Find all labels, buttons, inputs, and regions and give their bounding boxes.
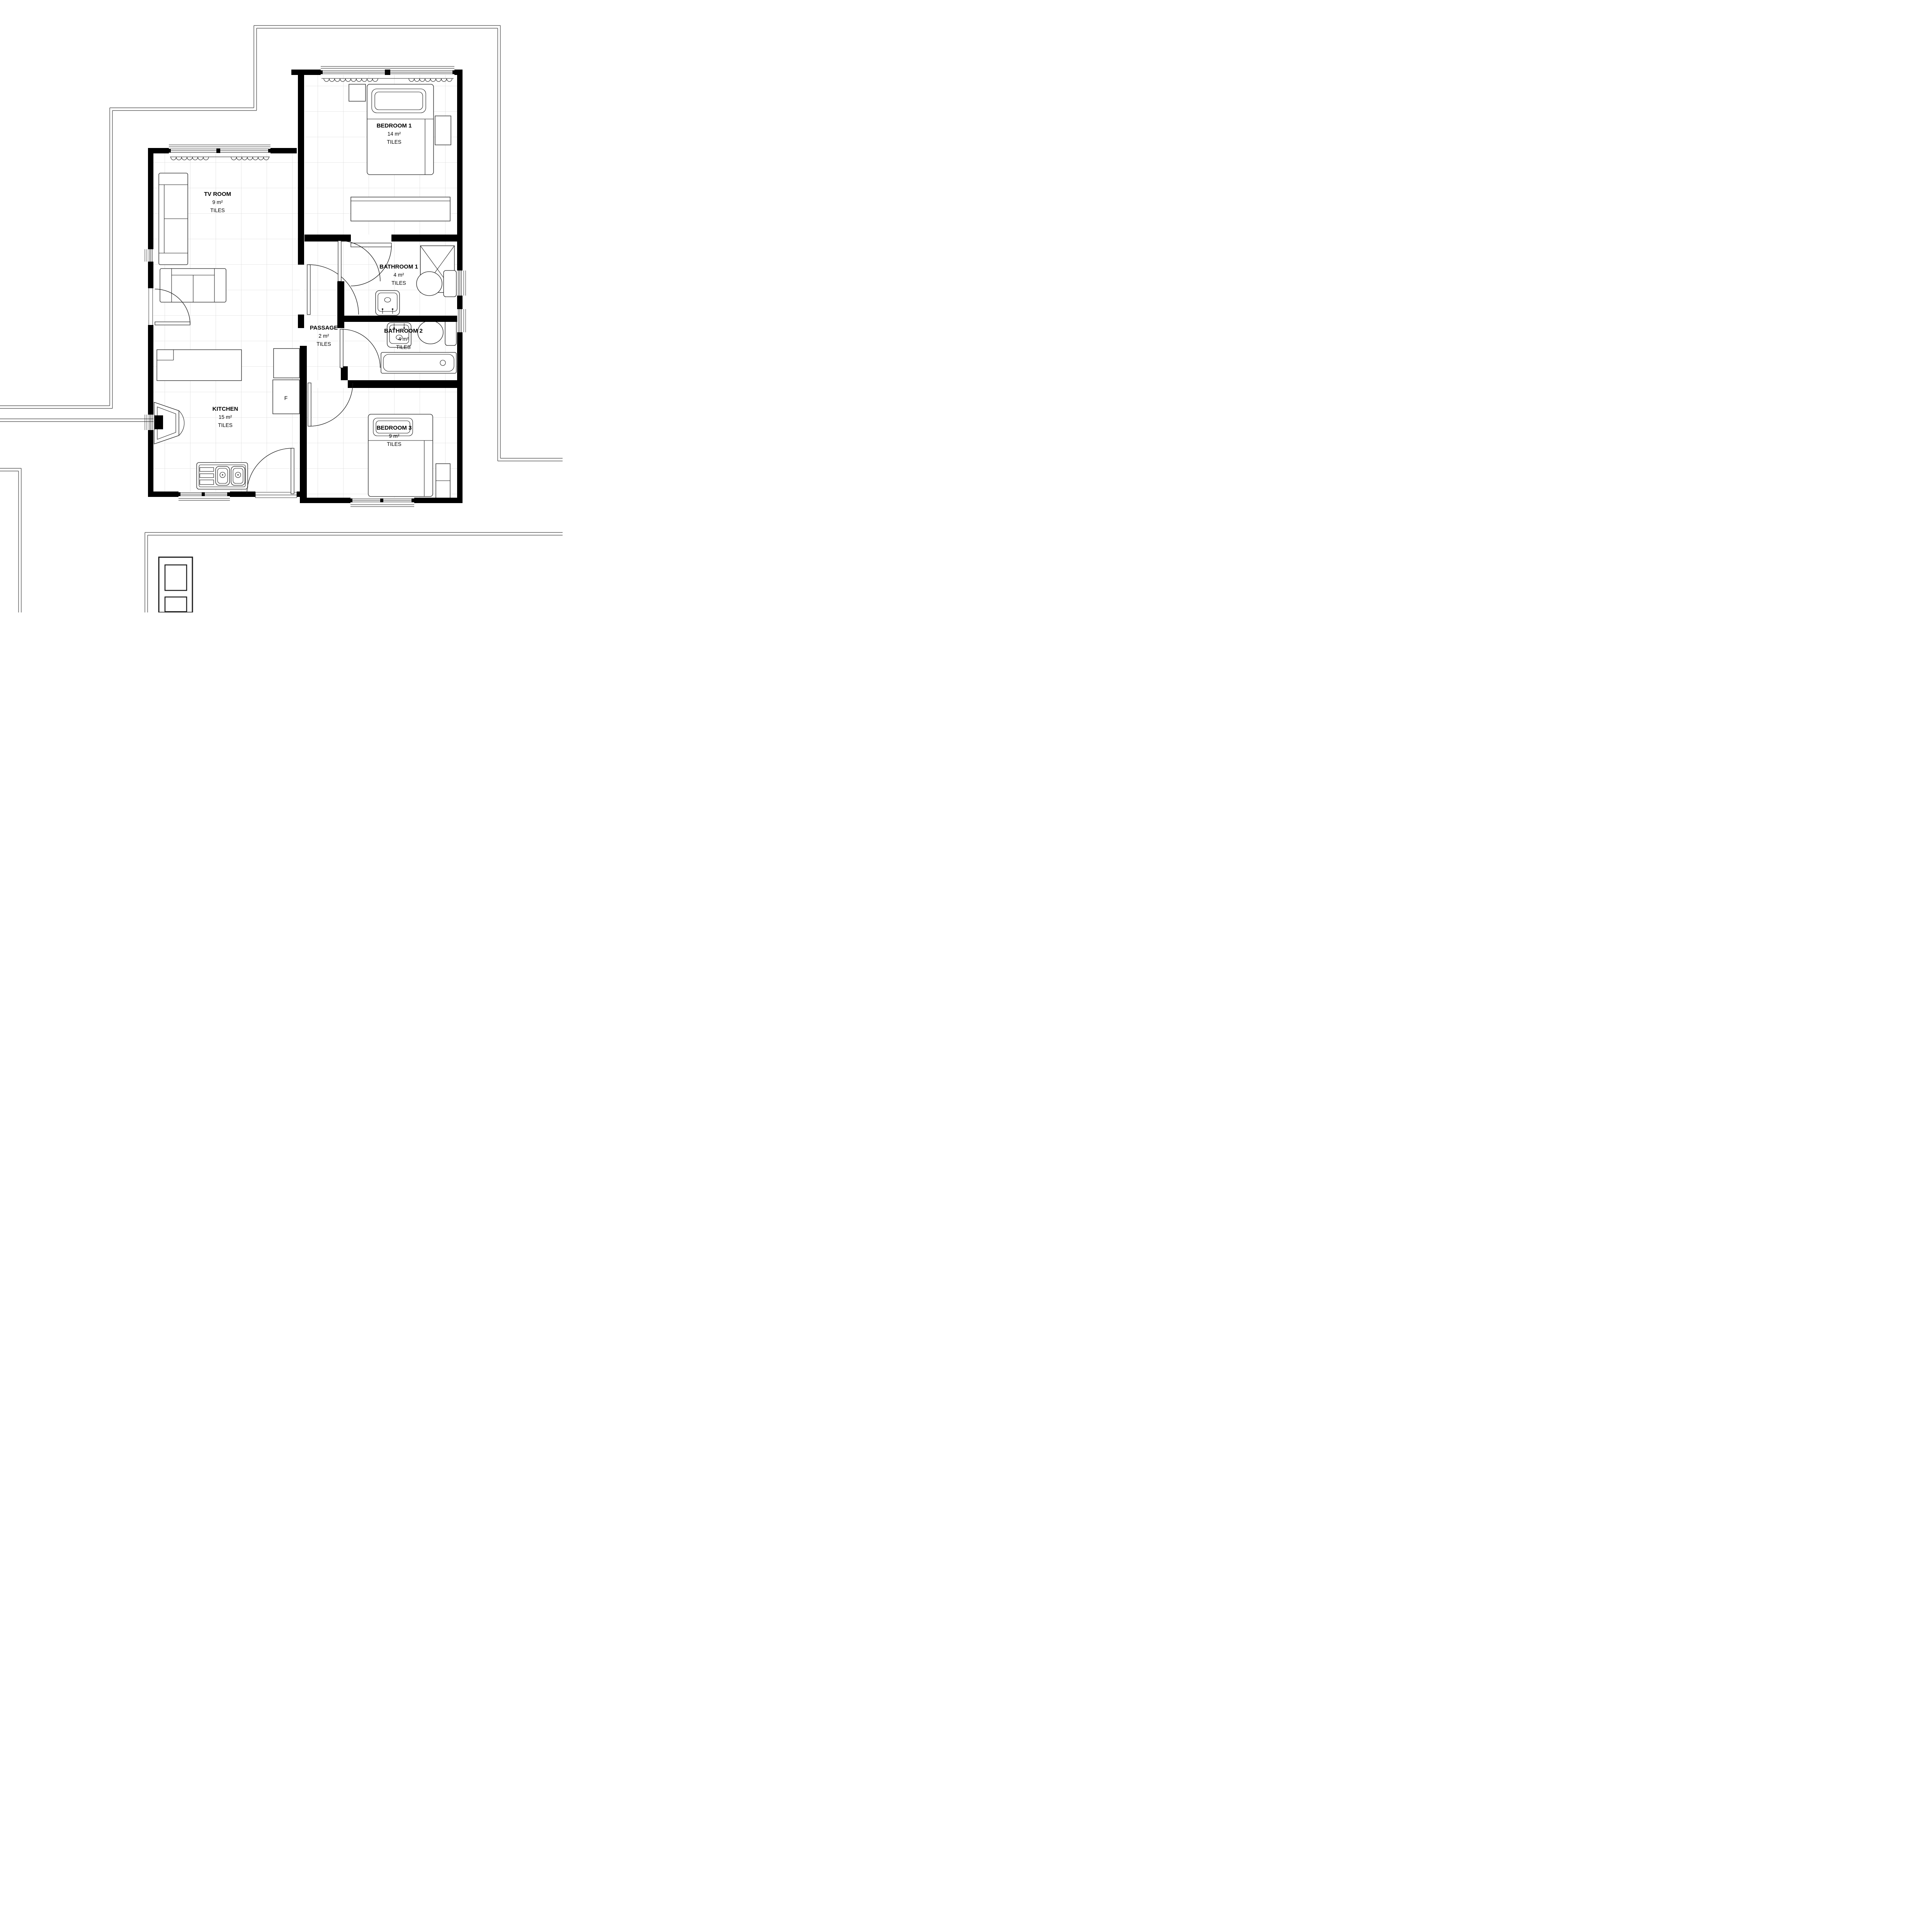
bed1-side-table-left	[349, 84, 366, 101]
bed1-side-table-right	[435, 116, 451, 145]
svg-text:BATHROOM 2: BATHROOM 2	[384, 328, 423, 334]
outbuilding-panel-bottom	[165, 597, 187, 612]
svg-text:BATHROOM 1: BATHROOM 1	[379, 264, 418, 270]
floor-plan-page: F	[0, 0, 563, 612]
toilet1-symbol	[417, 270, 456, 297]
outbuilding-panel-top	[165, 565, 187, 590]
basin2-symbol	[387, 323, 411, 347]
svg-text:TILES: TILES	[396, 344, 411, 350]
fridge-symbol: F	[273, 380, 299, 414]
svg-text:15 m²: 15 m²	[219, 414, 232, 420]
bed1-double-bed-symbol	[367, 84, 434, 175]
svg-text:9 m²: 9 m²	[213, 199, 223, 205]
bathtub-symbol	[381, 352, 456, 373]
svg-text:BEDROOM 3: BEDROOM 3	[377, 425, 412, 431]
svg-text:TILES: TILES	[210, 207, 225, 213]
svg-text:9 m²: 9 m²	[389, 433, 400, 439]
stove-flue	[155, 415, 163, 429]
sofa-horizontal-symbol	[160, 269, 226, 302]
outbuilding-detail	[159, 557, 192, 612]
svg-text:14 m²: 14 m²	[388, 131, 401, 137]
floor-plan-drawing: F	[0, 0, 563, 612]
kitchen-cabinet-symbol	[274, 349, 299, 378]
bedroom1-wardrobe-symbol	[351, 197, 450, 221]
svg-text:BEDROOM 1: BEDROOM 1	[377, 122, 412, 129]
svg-text:KITCHEN: KITCHEN	[213, 406, 238, 412]
svg-text:TV ROOM: TV ROOM	[204, 191, 231, 197]
kitch-sink-symbol	[197, 463, 248, 489]
toilet2-symbol	[418, 319, 456, 345]
svg-text:4 m²: 4 m²	[394, 272, 405, 278]
svg-text:2 m²: 2 m²	[319, 333, 330, 339]
svg-text:TILES: TILES	[316, 341, 331, 347]
fridge-label: F	[284, 395, 288, 401]
bed3-side-table	[436, 464, 450, 501]
kitchen-counter-symbol	[157, 350, 241, 381]
svg-text:TILES: TILES	[391, 280, 406, 286]
basin1-symbol	[376, 291, 400, 315]
svg-text:4 m²: 4 m²	[398, 336, 409, 342]
sofa-vertical-symbol	[159, 173, 188, 265]
svg-text:PASSAGE: PASSAGE	[310, 325, 338, 331]
svg-text:TILES: TILES	[387, 139, 401, 145]
svg-text:TILES: TILES	[218, 422, 233, 428]
svg-text:TILES: TILES	[387, 441, 401, 447]
